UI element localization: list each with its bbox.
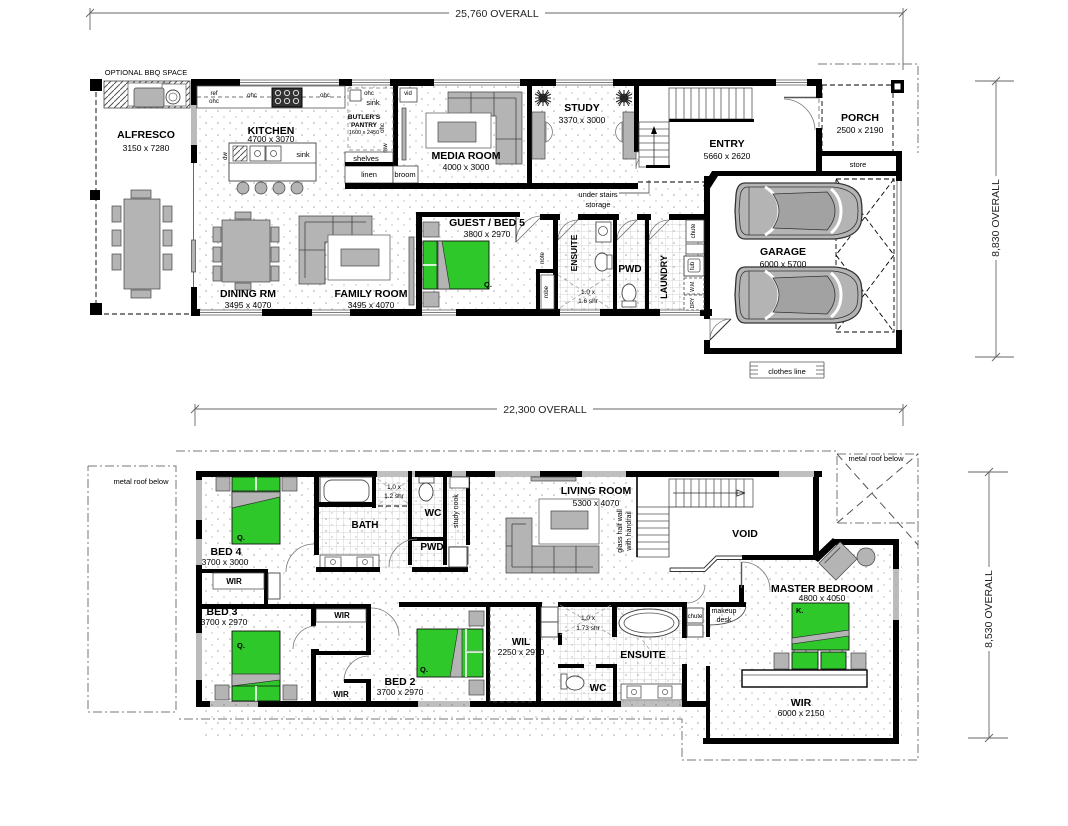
svg-text:with handrail: with handrail — [626, 511, 633, 552]
svg-text:25,760 OVERALL: 25,760 OVERALL — [455, 8, 539, 20]
svg-text:3495 x 4070: 3495 x 4070 — [348, 300, 395, 310]
svg-text:WC: WC — [590, 683, 607, 694]
svg-text:ohc: ohc — [364, 91, 374, 97]
svg-text:Q.: Q. — [237, 641, 245, 650]
svg-text:PWD: PWD — [618, 264, 641, 275]
svg-text:makeup: makeup — [712, 608, 737, 615]
svg-text:OPTIONAL BBQ SPACE: OPTIONAL BBQ SPACE — [105, 68, 188, 77]
svg-text:broom: broom — [394, 170, 415, 179]
svg-text:Q.: Q. — [237, 533, 245, 542]
svg-text:ref: ref — [210, 91, 217, 97]
svg-text:metal roof below: metal roof below — [113, 477, 169, 486]
svg-text:5660 x 2620: 5660 x 2620 — [704, 151, 751, 161]
svg-text:tub: tub — [690, 261, 696, 270]
svg-text:desk: desk — [717, 617, 732, 624]
svg-text:sink: sink — [366, 98, 380, 107]
svg-text:BATH: BATH — [351, 520, 378, 531]
svg-text:study nook: study nook — [453, 494, 460, 528]
svg-text:Q.: Q. — [484, 280, 492, 289]
svg-text:under stairs: under stairs — [578, 190, 617, 199]
svg-text:DRY: DRY — [690, 297, 696, 308]
svg-text:1.2 shr: 1.2 shr — [384, 493, 405, 500]
svg-text:shelves: shelves — [353, 154, 379, 163]
svg-text:DINING RM: DINING RM — [220, 288, 276, 300]
svg-text:metal roof below: metal roof below — [848, 454, 904, 463]
svg-text:3800 x 2970: 3800 x 2970 — [464, 229, 511, 239]
svg-text:PORCH: PORCH — [841, 112, 879, 124]
svg-text:LIVING ROOM: LIVING ROOM — [561, 485, 632, 497]
svg-text:1600 x 2450: 1600 x 2450 — [349, 130, 379, 136]
svg-text:4700 x 3070: 4700 x 3070 — [248, 134, 295, 144]
svg-text:storage: storage — [585, 200, 610, 209]
svg-text:ALFRESCO: ALFRESCO — [117, 129, 175, 141]
svg-text:LAUNDRY: LAUNDRY — [659, 255, 669, 299]
svg-text:3700 x 3000: 3700 x 3000 — [202, 557, 249, 567]
svg-text:1.0 x: 1.0 x — [581, 615, 596, 622]
svg-text:ENSUITE: ENSUITE — [569, 234, 579, 271]
svg-text:1.6 shr: 1.6 shr — [578, 298, 599, 305]
svg-text:6000 x 2150: 6000 x 2150 — [778, 708, 825, 718]
svg-text:3700 x 2970: 3700 x 2970 — [377, 687, 424, 697]
svg-text:1.0 x: 1.0 x — [387, 484, 402, 491]
svg-text:22,300 OVERALL: 22,300 OVERALL — [503, 404, 587, 416]
svg-text:linen: linen — [361, 170, 377, 179]
svg-text:W.M.: W.M. — [690, 280, 696, 291]
svg-text:PANTRY: PANTRY — [351, 122, 378, 129]
svg-text:note: note — [540, 252, 546, 264]
svg-text:vid: vid — [404, 91, 412, 97]
svg-text:store: store — [850, 160, 867, 169]
svg-text:WIR: WIR — [333, 690, 349, 699]
svg-text:GUEST / BED 5: GUEST / BED 5 — [449, 217, 525, 229]
svg-text:ENSUITE: ENSUITE — [620, 649, 666, 661]
svg-text:clothes line: clothes line — [768, 367, 806, 376]
svg-text:3370 x 3000: 3370 x 3000 — [559, 115, 606, 125]
svg-text:MEDIA ROOM: MEDIA ROOM — [431, 150, 500, 162]
svg-text:3150 x 7280: 3150 x 7280 — [123, 143, 170, 153]
svg-text:8,830 OVERALL: 8,830 OVERALL — [990, 179, 1002, 257]
svg-text:4000 x 3000: 4000 x 3000 — [443, 162, 490, 172]
svg-text:mw: mw — [383, 143, 389, 153]
svg-text:1.73 shr: 1.73 shr — [576, 625, 600, 632]
svg-text:WIR: WIR — [226, 577, 242, 586]
svg-text:FAMILY ROOM: FAMILY ROOM — [335, 288, 408, 300]
svg-text:1.0 x: 1.0 x — [581, 289, 596, 296]
svg-text:VOID: VOID — [732, 528, 758, 540]
svg-text:glass half wall: glass half wall — [617, 509, 624, 553]
svg-text:dw: dw — [223, 151, 229, 159]
svg-text:GARAGE: GARAGE — [760, 246, 806, 258]
svg-text:ohc: ohc — [209, 99, 219, 105]
svg-text:robe: robe — [544, 285, 550, 298]
svg-text:chute: chute — [688, 614, 703, 620]
svg-text:ohc: ohc — [380, 123, 386, 133]
svg-text:K.: K. — [796, 606, 804, 615]
svg-text:ohc: ohc — [320, 93, 330, 99]
svg-text:8,530 OVERALL: 8,530 OVERALL — [983, 570, 995, 648]
svg-text:4800 x 4050: 4800 x 4050 — [799, 593, 846, 603]
svg-text:BUTLER'S: BUTLER'S — [348, 114, 381, 121]
svg-text:6000 x 5700: 6000 x 5700 — [760, 259, 807, 269]
svg-text:WC: WC — [425, 508, 442, 519]
svg-text:2500 x 2190: 2500 x 2190 — [837, 125, 884, 135]
svg-text:ENTRY: ENTRY — [709, 138, 744, 150]
svg-text:3700 x 2970: 3700 x 2970 — [201, 617, 248, 627]
svg-text:ohc: ohc — [247, 93, 257, 99]
svg-text:5300 x 4070: 5300 x 4070 — [573, 498, 620, 508]
svg-text:PWD: PWD — [420, 542, 443, 553]
svg-text:3495 x 4070: 3495 x 4070 — [225, 300, 272, 310]
svg-text:Q.: Q. — [420, 665, 428, 674]
svg-text:sink: sink — [296, 150, 310, 159]
svg-text:chute: chute — [691, 223, 697, 238]
svg-text:WIR: WIR — [334, 611, 350, 620]
svg-text:STUDY: STUDY — [564, 102, 600, 114]
svg-text:2250 x 2970: 2250 x 2970 — [498, 647, 545, 657]
